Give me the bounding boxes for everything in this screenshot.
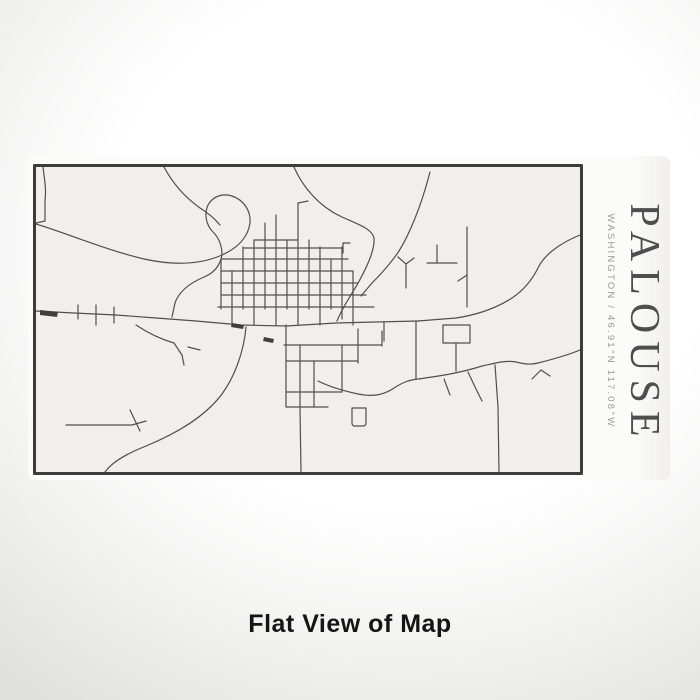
- map-svg: [36, 167, 580, 472]
- caption-text: Flat View of Map: [0, 610, 700, 639]
- map-card: [33, 164, 583, 475]
- map-title-block: PALOUSE WASHINGTON / 46.91°N 117.08°W: [577, 170, 667, 470]
- city-title: PALOUSE: [621, 170, 667, 470]
- city-subtitle: WASHINGTON / 46.91°N 117.08°W: [605, 170, 616, 470]
